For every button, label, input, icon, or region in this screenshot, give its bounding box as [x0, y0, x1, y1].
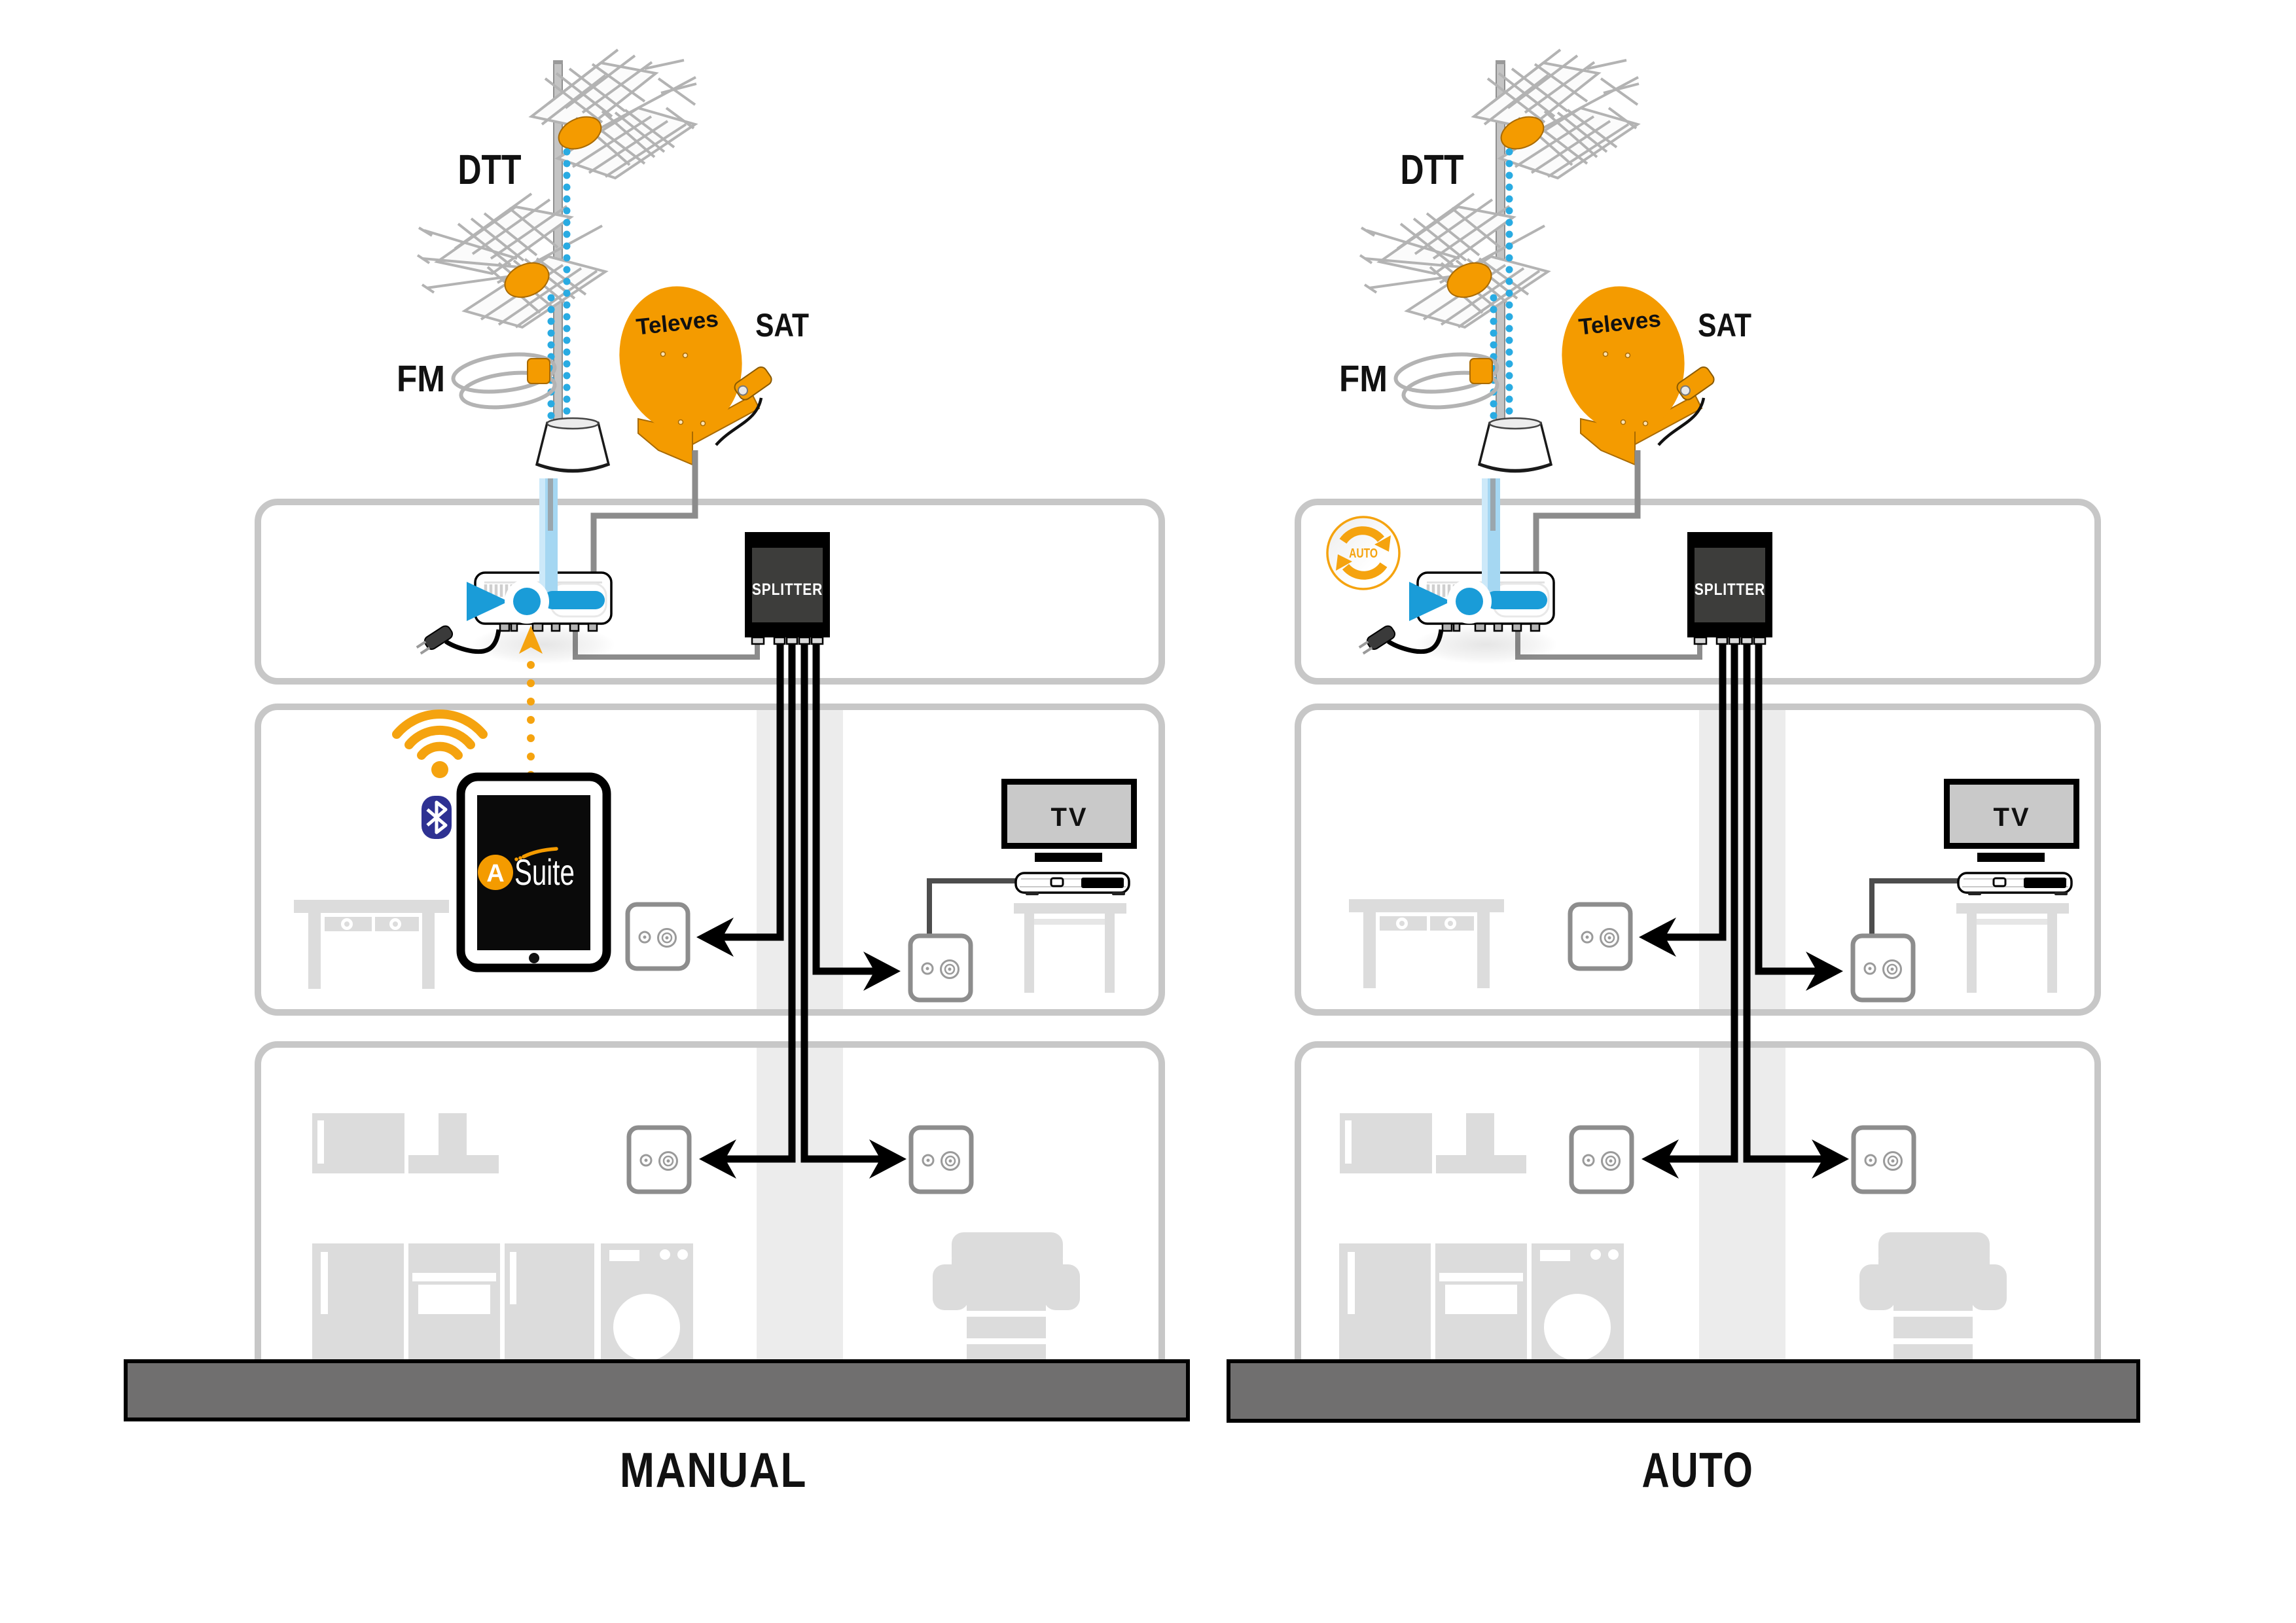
- svg-text:AUTO: AUTO: [1349, 546, 1378, 560]
- svg-text:AUTO: AUTO: [1642, 1443, 1754, 1498]
- svg-text:Suite: Suite: [514, 853, 575, 893]
- svg-text:A: A: [486, 860, 504, 887]
- svg-text:MANUAL: MANUAL: [620, 1442, 807, 1497]
